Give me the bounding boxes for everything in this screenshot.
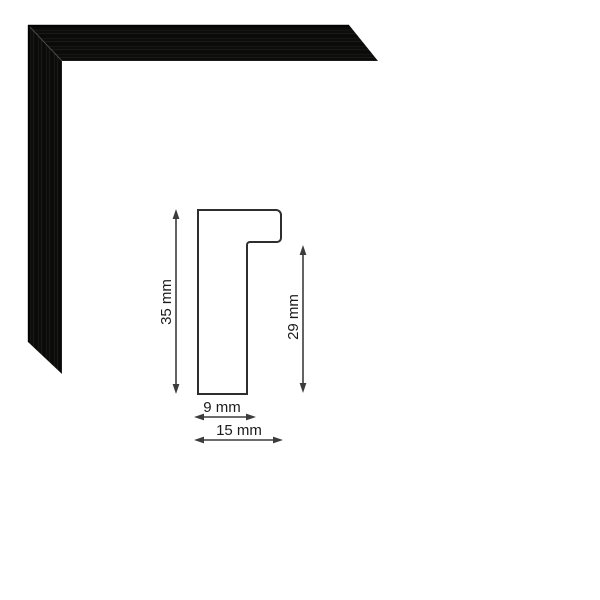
dimension-height-35mm: 35 mm: [158, 209, 179, 394]
dim-29-label: 29 mm: [285, 294, 302, 340]
dim-15-label: 15 mm: [216, 422, 262, 439]
dim-15-arrowhead-left-icon: [194, 437, 204, 444]
moulding-drawing-svg: 35 mm 29 mm 9 mm 15 mm: [0, 0, 600, 600]
frame-horizontal-grain-texture: [28, 25, 378, 61]
profile-cross-section-diagram: 35 mm 29 mm 9 mm 15 mm: [158, 209, 306, 443]
dim-35-label: 35 mm: [158, 279, 175, 325]
dim-29-arrowhead-down-icon: [300, 383, 307, 393]
dimension-total-width-15mm: 15 mm: [194, 422, 283, 443]
dim-9-label: 9 mm: [203, 399, 241, 416]
dim-29-arrowhead-up-icon: [300, 245, 307, 255]
dim-35-arrowhead-down-icon: [173, 384, 180, 394]
dim-9-arrowhead-right-icon: [246, 414, 256, 421]
dimension-face-width-9mm: 9 mm: [194, 399, 256, 420]
dim-15-arrowhead-right-icon: [273, 437, 283, 444]
dim-35-arrowhead-up-icon: [173, 209, 180, 219]
product-image-canvas: 35 mm 29 mm 9 mm 15 mm: [0, 0, 600, 600]
profile-outline: [198, 210, 281, 394]
frame-vertical-grain-texture: [28, 25, 62, 374]
dimension-rebate-29mm: 29 mm: [285, 245, 306, 393]
